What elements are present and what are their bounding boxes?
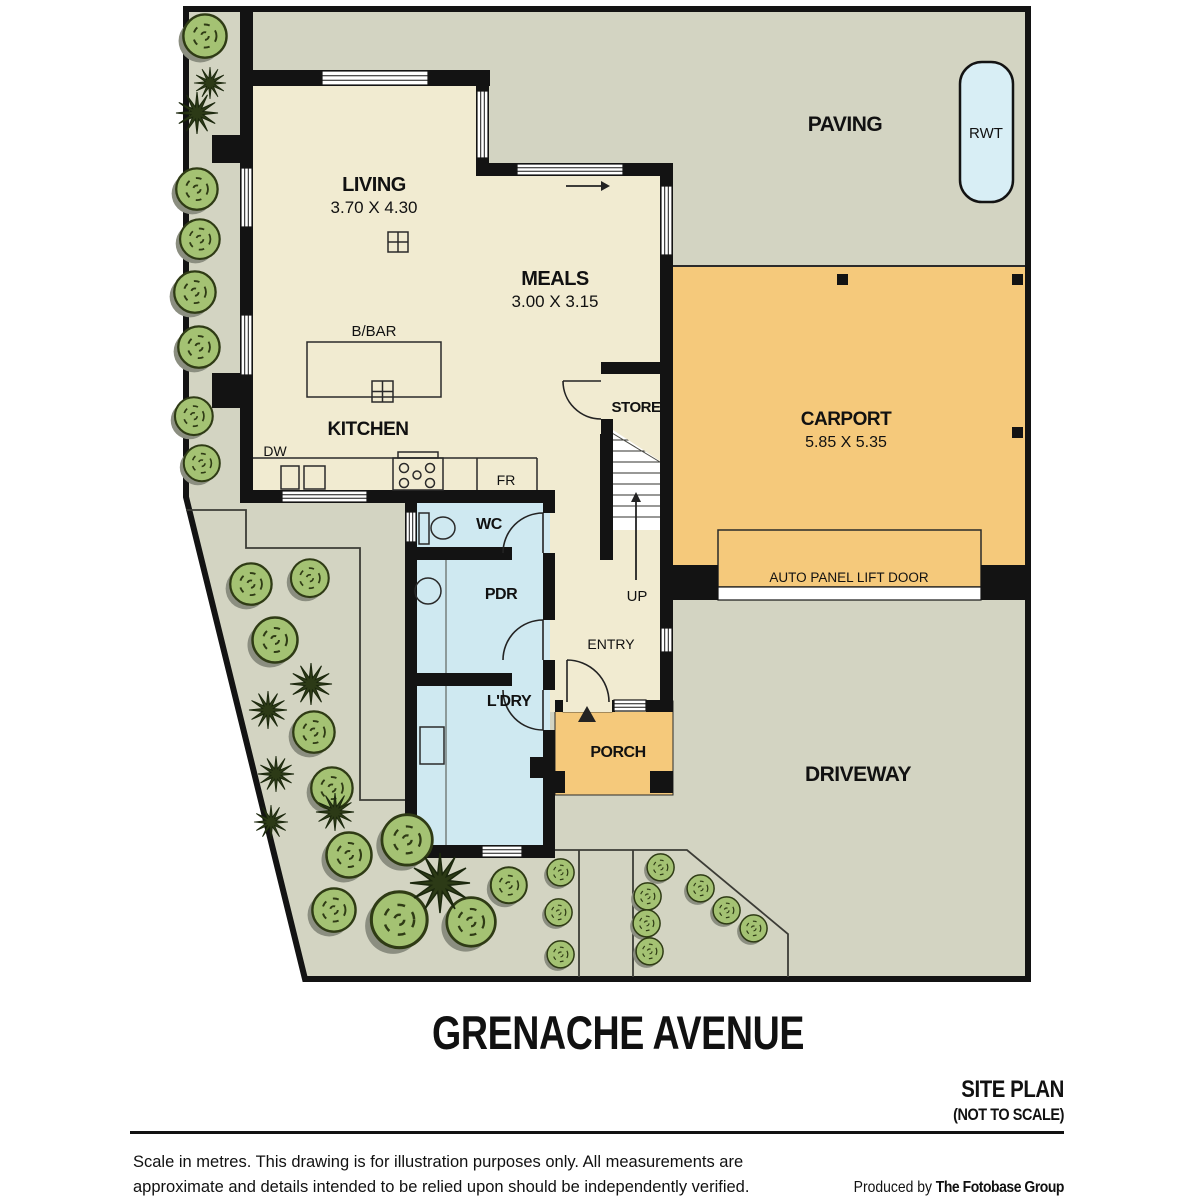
rwt-label: RWT xyxy=(969,125,1003,142)
carport-post xyxy=(837,274,848,285)
rainwater-tank: RWT xyxy=(960,62,1013,202)
wall-pier xyxy=(212,135,240,163)
kitchen-label: KITCHEN xyxy=(328,419,409,440)
staircase xyxy=(607,430,660,530)
carport-post xyxy=(1012,427,1023,438)
up-label: UP xyxy=(627,588,648,605)
disclaimer-line-1: Scale in metres. This drawing is for ill… xyxy=(133,1153,743,1171)
disclaimer-line-2: approximate and details intended to be r… xyxy=(133,1178,749,1196)
pdr-label: PDR xyxy=(485,586,518,603)
bbar-label: B/BAR xyxy=(351,323,396,340)
porch-label: PORCH xyxy=(590,744,645,761)
fr-label: FR xyxy=(497,472,516,488)
meals-label: MEALS xyxy=(521,268,589,290)
wall-pier xyxy=(530,757,555,778)
site-plan-drawing: RWT LIVING 3.70 X 4.30 MEALS 3.00 X 3.15… xyxy=(0,0,1200,1200)
paving-label: PAVING xyxy=(808,113,883,136)
store-label: STORE xyxy=(612,399,661,416)
carport-post xyxy=(1012,274,1023,285)
meals-dims: 3.00 X 3.15 xyxy=(512,292,599,311)
lift-door-label: AUTO PANEL LIFT DOOR xyxy=(769,570,929,585)
wall-pier xyxy=(212,373,243,408)
carport-label: CARPORT xyxy=(801,409,892,430)
entry-label: ENTRY xyxy=(587,636,635,652)
scale-note-label: (NOT TO SCALE) xyxy=(953,1106,1064,1124)
street-name: GRENACHE AVENUE xyxy=(432,1007,804,1060)
driveway-label: DRIVEWAY xyxy=(805,763,912,786)
carport-dims: 5.85 X 5.35 xyxy=(805,434,887,451)
living-dims: 3.70 X 4.30 xyxy=(331,198,418,217)
site-plan-page: RWT LIVING 3.70 X 4.30 MEALS 3.00 X 3.15… xyxy=(0,0,1200,1200)
plan-type-label: SITE PLAN xyxy=(961,1075,1064,1102)
wc-label: WC xyxy=(476,516,503,533)
credit-prefix: Produced by xyxy=(854,1179,936,1196)
title-block: GRENACHE AVENUE SITE PLAN (NOT TO SCALE)… xyxy=(130,1007,1064,1196)
porch-post xyxy=(650,771,673,793)
carport-lift-door-opening xyxy=(718,587,981,600)
ldry-label: L'DRY xyxy=(487,693,532,710)
footer-divider xyxy=(130,1131,1064,1134)
front-fence-wall xyxy=(240,8,253,72)
carport-area xyxy=(673,266,1025,600)
dw-label: DW xyxy=(263,443,287,459)
living-label: LIVING xyxy=(342,174,406,196)
credit-name: The Fotobase Group xyxy=(936,1179,1065,1196)
credit-line: Produced by The Fotobase Group xyxy=(854,1179,1065,1196)
